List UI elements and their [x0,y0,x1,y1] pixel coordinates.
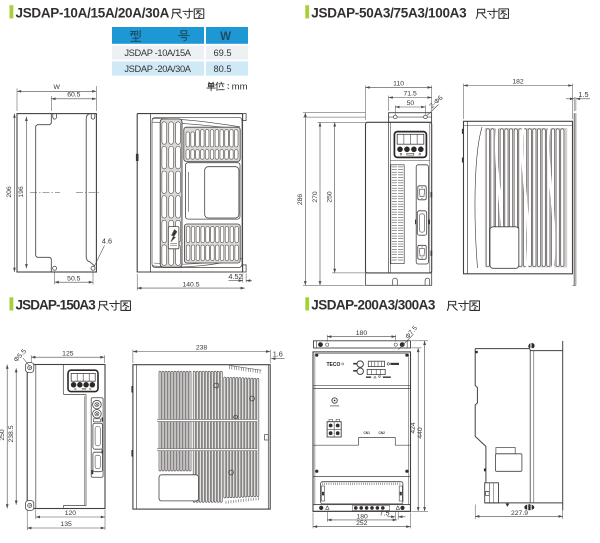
svg-text:CN1: CN1 [364,431,371,435]
svg-text:270: 270 [312,191,319,203]
svg-text:W: W [53,84,60,91]
svg-text:W: W [220,31,231,43]
svg-text:JSDAP-50A3/75A3/100A3: JSDAP-50A3/75A3/100A3 [311,6,467,21]
svg-text:50.5: 50.5 [67,275,80,282]
svg-text:7.5: 7.5 [379,508,389,517]
svg-text:238.5: 238.5 [8,425,15,442]
svg-text:JSDAP-200A3/300A3: JSDAP-200A3/300A3 [311,298,436,313]
svg-text:182: 182 [512,79,524,86]
svg-text:JSDAP-150A3: JSDAP-150A3 [16,298,97,313]
svg-text:227.9: 227.9 [511,510,528,517]
svg-text:JSDAP-10A/15A/20A/30A: JSDAP-10A/15A/20A/30A [16,6,170,21]
svg-text:196: 196 [18,186,25,198]
svg-text:mm: mm [232,82,248,93]
svg-text:125: 125 [62,350,74,357]
svg-text:4.6: 4.6 [102,237,112,246]
svg-text:4.52: 4.52 [228,272,242,281]
svg-text:69.5: 69.5 [213,48,231,58]
svg-text:250: 250 [326,191,333,203]
svg-text:80.5: 80.5 [213,64,231,74]
svg-text:1.6: 1.6 [273,350,283,359]
svg-text:JSDAP -10A/15A: JSDAP -10A/15A [124,48,191,58]
svg-text:135: 135 [60,521,72,528]
svg-text:286: 286 [297,194,304,206]
svg-text:71.5: 71.5 [404,91,417,98]
svg-text:180: 180 [356,330,368,337]
svg-text:252: 252 [356,520,368,527]
svg-text:440: 440 [417,427,424,439]
svg-text:140.5: 140.5 [182,281,199,288]
svg-text:CN2: CN2 [379,431,386,435]
svg-text:JSDAP -20A/30A: JSDAP -20A/30A [124,64,191,74]
svg-text:TECO: TECO [327,362,341,368]
svg-text:120: 120 [65,510,77,517]
svg-text:110: 110 [393,81,404,88]
svg-text:206: 206 [6,186,13,198]
svg-text:250: 250 [0,429,6,441]
svg-text:1.5: 1.5 [578,90,588,99]
svg-text:238: 238 [196,345,208,352]
svg-text:60.5: 60.5 [67,92,80,99]
svg-text:50: 50 [407,100,415,107]
